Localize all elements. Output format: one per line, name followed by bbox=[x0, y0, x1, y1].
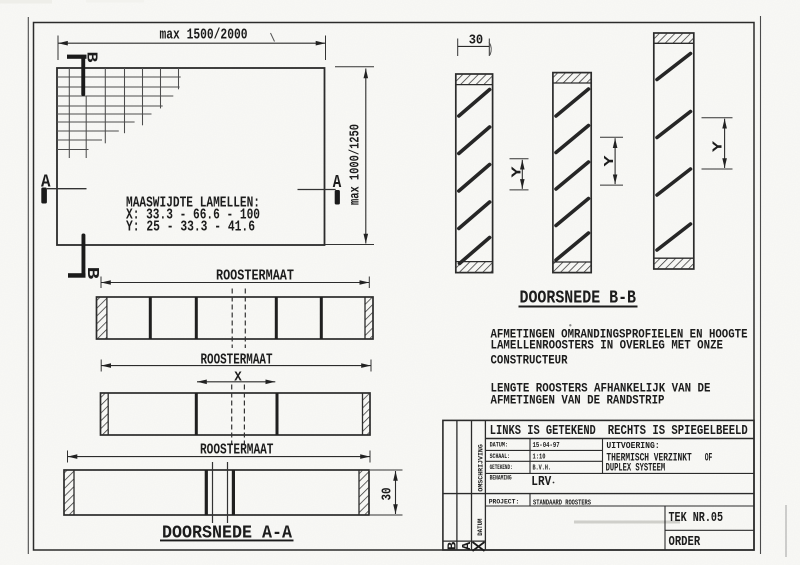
svg-text:PROJECT:: PROJECT: bbox=[489, 498, 520, 506]
svg-text:DOORSNEDE B-B: DOORSNEDE B-B bbox=[520, 288, 637, 309]
svg-text:30: 30 bbox=[469, 33, 484, 49]
svg-text:max 1000/1250: max 1000/1250 bbox=[348, 124, 364, 205]
svg-text:B: B bbox=[445, 542, 459, 551]
svg-text:30: 30 bbox=[380, 488, 396, 501]
svg-text:Y: Y bbox=[711, 140, 727, 152]
svg-text:OMSCHRIJVING: OMSCHRIJVING bbox=[478, 444, 485, 492]
svg-text:B.V.H.: B.V.H. bbox=[533, 465, 552, 473]
svg-text:Y: Y bbox=[602, 155, 618, 167]
svg-text:DUPLEX SYSTEEM: DUPLEX SYSTEEM bbox=[606, 463, 666, 475]
svg-text:ROOSTERMAAT: ROOSTERMAAT bbox=[201, 352, 273, 369]
svg-text:SCHAAL:: SCHAAL: bbox=[490, 453, 511, 460]
svg-text:X: X bbox=[234, 371, 242, 386]
svg-text:OF: OF bbox=[705, 453, 713, 465]
svg-text:B: B bbox=[83, 52, 100, 63]
svg-text:Y: Y bbox=[510, 166, 526, 178]
svg-text:TEK NR.05: TEK NR.05 bbox=[669, 511, 724, 526]
svg-text:BENAMING: BENAMING bbox=[490, 474, 512, 481]
svg-text:1:10: 1:10 bbox=[533, 453, 546, 461]
svg-text:max 1500/2000: max 1500/2000 bbox=[160, 27, 248, 43]
svg-text:GETEKEND:: GETEKEND: bbox=[490, 464, 513, 471]
svg-text:15-04-97: 15-04-97 bbox=[533, 442, 560, 450]
svg-text:B: B bbox=[83, 267, 102, 280]
svg-text:LAMELLENROOSTERS IN OVERLEG ME: LAMELLENROOSTERS IN OVERLEG MET ONZE bbox=[491, 339, 724, 353]
svg-text:A: A bbox=[460, 541, 474, 550]
svg-text:RECHTS IS SPIEGELBEELD: RECHTS IS SPIEGELBEELD bbox=[608, 423, 748, 439]
svg-text:LINKS IS GETEKEND: LINKS IS GETEKEND bbox=[490, 423, 596, 439]
svg-text:LRV: LRV bbox=[531, 474, 551, 490]
svg-text:DATUM:: DATUM: bbox=[490, 441, 509, 448]
svg-text:UITVOERING:: UITVOERING: bbox=[606, 441, 659, 451]
svg-text:AFMETINGEN VAN DE RANDSTRIP: AFMETINGEN VAN DE RANDSTRIP bbox=[491, 394, 665, 408]
svg-text:CONSTRUCTEUR: CONSTRUCTEUR bbox=[491, 354, 568, 368]
svg-text:ORDER: ORDER bbox=[669, 535, 701, 550]
svg-text:Y: 25 - 33.3 - 41.6: Y: 25 - 33.3 - 41.6 bbox=[126, 219, 255, 235]
svg-text:DATUM: DATUM bbox=[477, 518, 484, 535]
